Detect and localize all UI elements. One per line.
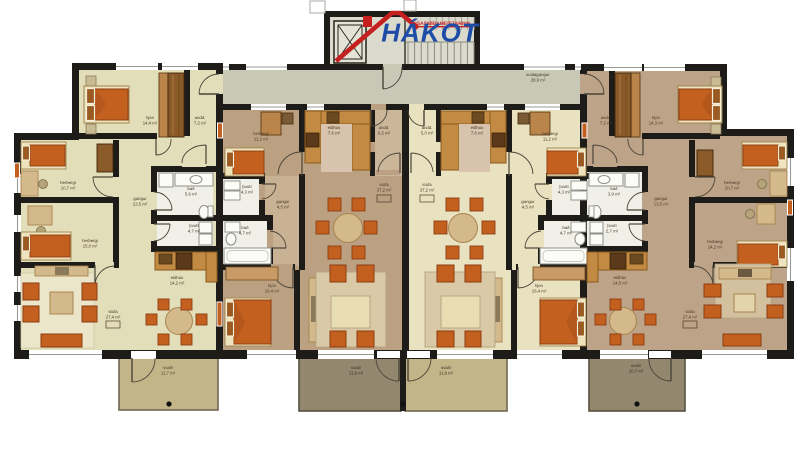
svg-text:andd.7,2 m²: andd.7,2 m² <box>194 115 207 126</box>
svg-text:herbergi14,2 m²: herbergi14,2 m² <box>707 239 723 250</box>
svg-text:andd.7,2 m²: andd.7,2 m² <box>600 115 613 126</box>
svg-text:andd.6,2 m²: andd.6,2 m² <box>378 125 391 136</box>
svg-text:eldhús7,6 m²: eldhús7,6 m² <box>471 125 484 136</box>
svg-text:andd.5,0 m²: andd.5,0 m² <box>421 125 434 136</box>
svg-text:herbergi15,0 m²: herbergi15,0 m² <box>82 238 98 249</box>
svg-text:herbergi11,2 m²: herbergi11,2 m² <box>542 131 558 142</box>
svg-text:eldhús7,6 m²: eldhús7,6 m² <box>328 125 341 136</box>
svg-text:herbergi10,7 m²: herbergi10,7 m² <box>60 180 76 191</box>
svg-text:gangur4,5 m²: gangur4,5 m² <box>521 199 535 210</box>
svg-text:gangur4,5 m²: gangur4,5 m² <box>276 199 290 210</box>
svg-text:eldhús14,5 m²: eldhús14,5 m² <box>613 275 628 286</box>
svg-text:eldhús14,2 m²: eldhús14,2 m² <box>170 275 185 286</box>
svg-text:herbergi11,2 m²: herbergi11,2 m² <box>253 131 269 142</box>
svg-text:gangur13,5 m²: gangur13,5 m² <box>654 196 669 207</box>
svg-text:gangur13,5 m²: gangur13,5 m² <box>133 196 148 207</box>
svg-text:HÁKOT: HÁKOT <box>381 18 480 48</box>
svg-text:herbergi10,7 m²: herbergi10,7 m² <box>724 180 740 191</box>
